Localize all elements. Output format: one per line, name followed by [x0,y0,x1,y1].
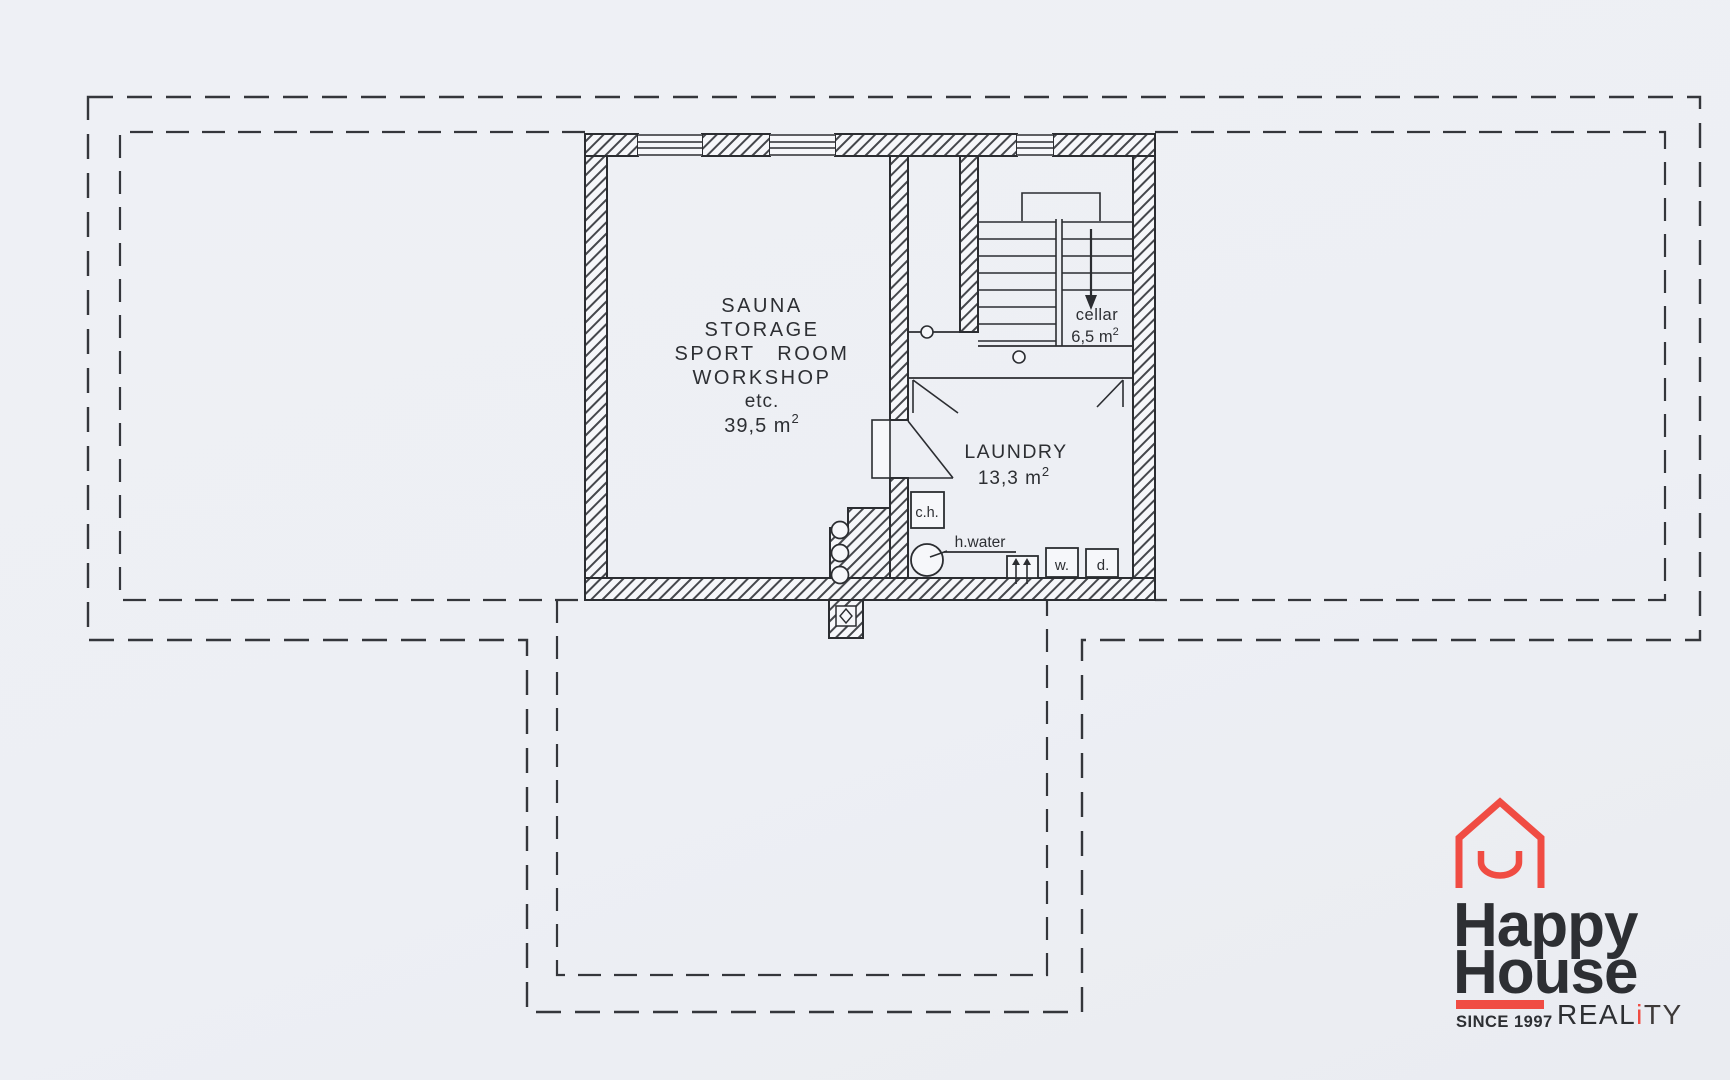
dryer-label: d. [1097,557,1110,574]
main-room-line4: WORKSHOP [693,367,832,389]
laundry-area: 13,3 m2 [978,464,1050,489]
main-room-area: 39,5 m2 [724,411,799,437]
newel-post-icon [1013,351,1025,363]
wall-top-seg4 [1053,134,1155,156]
scanned-floor-plan-page: c.h. h.water w. d. SAUNA STORAGE SPORT R… [0,0,1730,1080]
chimney-flue-icon [836,606,856,626]
logo-red-bar [1456,1000,1544,1009]
window-3 [1017,134,1053,156]
wall-laundry-west-lower [890,478,908,578]
pipe-icon [832,545,849,562]
stair-treads-right [1062,222,1133,290]
window-1 [638,134,702,156]
hot-water-boiler-icon [911,544,943,576]
doors [872,380,1123,478]
window-2 [770,134,835,156]
logo-reality: REALiTY [1557,999,1683,1030]
stair-treads-left [978,222,1056,341]
wall-stairs-west [960,156,978,332]
main-room-label: SAUNA STORAGE SPORT ROOM WORKSHOP etc. 3… [675,295,850,437]
logo-word-house: House [1453,938,1637,1007]
wall-bottom [585,578,1155,600]
stair-divider [1056,219,1062,346]
wall-right [1133,134,1155,600]
main-room-line2: STORAGE [705,319,820,341]
cellar-area: 6,5 m2 [1071,326,1118,346]
pipe-icon [832,567,849,584]
wall-left [585,134,607,600]
laundry-name: LAUNDRY [964,441,1067,463]
main-room-line1: SAUNA [721,295,802,317]
smile-icon [1481,851,1519,876]
cellar-label: cellar 6,5 m2 [1071,306,1118,346]
laundry-label: LAUNDRY 13,3 m2 [964,441,1067,489]
main-room-line3: SPORT ROOM [675,343,850,365]
washer-label: w. [1054,557,1069,574]
logo-since: SINCE 1997 [1456,1013,1553,1031]
main-room-line5: etc. [745,391,780,412]
wall-laundry-west-upper [890,156,908,420]
door-swing-hall-right [1097,380,1123,407]
stairwell-header-line [1022,193,1100,221]
agency-logo: Happy House SINCE 1997 REALiTY [1453,802,1683,1031]
central-heating-label: c.h. [915,505,938,521]
cellar-name: cellar [1076,306,1118,324]
stairs-down-arrow-icon [1085,229,1097,310]
door-swing-mainroom-laundry [908,421,953,478]
wall-top-seg3 [835,134,1017,156]
door-leaf [872,420,890,478]
happy-house-icon [1459,802,1541,888]
wall-top-seg1 [585,134,638,156]
wall-top-seg2 [702,134,770,156]
pipe-icon [832,522,849,539]
newel-post-icon [921,326,933,338]
floor-plan-svg: c.h. h.water w. d. SAUNA STORAGE SPORT R… [0,0,1730,1080]
hot-water-label: h.water [955,534,1006,551]
door-swing-hall-left [913,380,958,413]
